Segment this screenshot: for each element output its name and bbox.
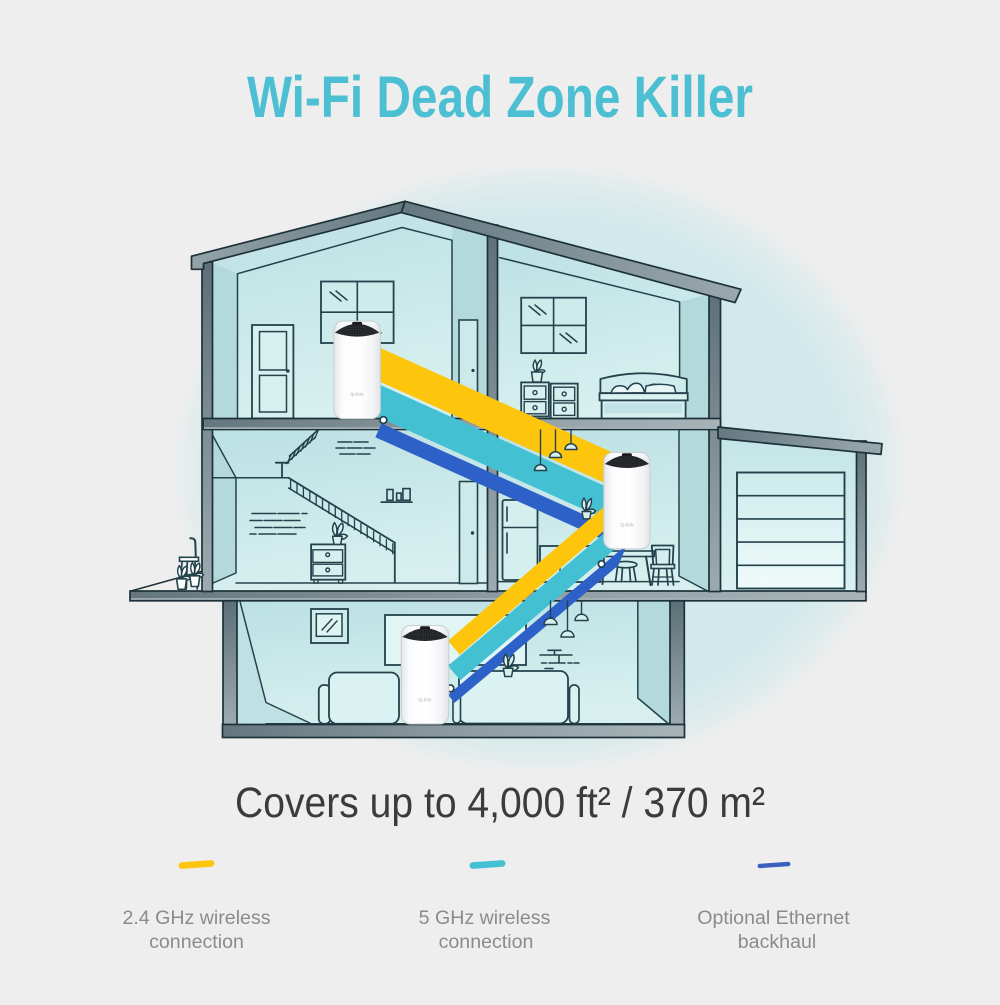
svg-text:tp-link: tp-link <box>350 392 364 398</box>
svg-text:connection: connection <box>149 931 244 953</box>
svg-text:connection: connection <box>439 931 534 953</box>
svg-text:tp-link: tp-link <box>418 697 432 703</box>
svg-text:Covers up to 4,000 ft² / 370 m: Covers up to 4,000 ft² / 370 m² <box>235 779 765 827</box>
svg-text:Optional Ethernet: Optional Ethernet <box>697 907 850 929</box>
svg-text:backhaul: backhaul <box>738 931 816 953</box>
svg-text:5 GHz wireless: 5 GHz wireless <box>419 907 551 929</box>
svg-text:2.4 GHz wireless: 2.4 GHz wireless <box>122 907 270 929</box>
svg-text:tp-link: tp-link <box>620 523 634 529</box>
svg-text:Wi-Fi Dead Zone Killer: Wi-Fi Dead Zone Killer <box>247 65 753 130</box>
